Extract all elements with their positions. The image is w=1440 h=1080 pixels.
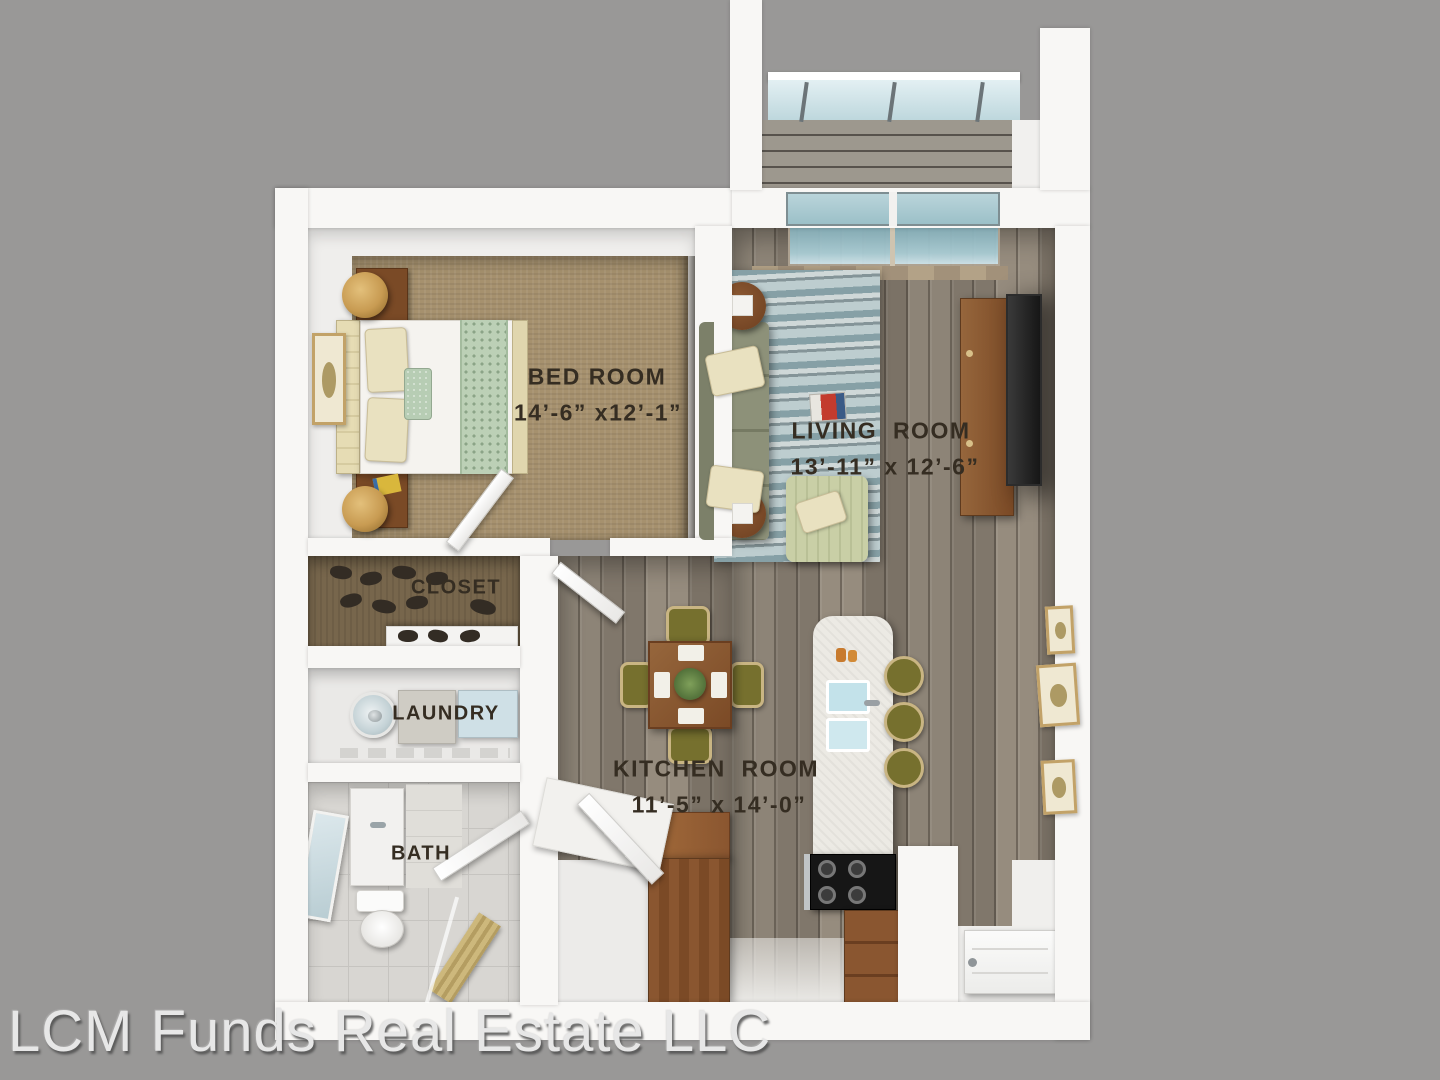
laundry-label: LAUNDRY: [392, 703, 500, 726]
toilet-tank: [356, 890, 404, 912]
kitchen-white-wall-column: [898, 846, 958, 1005]
tv-screen: [1006, 294, 1042, 486]
bar-stool-3: [884, 748, 924, 788]
tv-console-knob-1: [966, 350, 973, 357]
wall-bedroom-bottom-left: [308, 538, 550, 556]
wall-balcony-right: [1040, 28, 1090, 190]
closet-label: CLOSET: [411, 577, 501, 600]
stove-handle: [804, 854, 810, 910]
stove-burner-1: [818, 860, 836, 878]
island-spice-jar-2: [848, 650, 857, 662]
island-faucet: [864, 700, 880, 706]
hallway-wall-art-3: [1041, 759, 1078, 815]
wall-left-outer: [275, 188, 308, 1040]
bed-accent-pillow: [404, 368, 432, 420]
hallway-wall-art-2: [1036, 663, 1080, 728]
kitchen-label: KITCHEN ROOM: [613, 756, 819, 783]
bed-pillow-1: [364, 327, 409, 393]
kitchen-dimensions: 11’-5” x 14’-0”: [632, 792, 807, 819]
balcony-deck-side-strip: [1012, 120, 1040, 190]
island-sink-lower: [826, 718, 870, 752]
dining-chair-top: [666, 606, 710, 646]
table-lamp-top: [342, 272, 388, 318]
bed-runner-blanket: [460, 320, 508, 474]
table-lamp-bottom: [342, 486, 388, 532]
laundry-drain-grate: [340, 748, 510, 758]
closet-shelf-shoe-1: [398, 630, 418, 642]
placemat-left: [654, 672, 670, 698]
wall-laundry-bath-divider: [308, 763, 520, 782]
front-entry-door-panel-line-2: [972, 972, 1048, 974]
bath-label: BATH: [391, 843, 451, 866]
bed-pillow-2: [364, 397, 409, 463]
living-room-dimensions: 13’-11” x 12’-6”: [791, 454, 980, 481]
bar-stool-2: [884, 702, 924, 742]
candle-bottom: [732, 503, 753, 524]
watermark-text: LCM Funds Real Estate LLC: [8, 998, 771, 1065]
bedroom-dimensions: 14’-6” x12’-1”: [514, 400, 682, 427]
placemat-top: [678, 645, 704, 661]
kitchen-counter-left: [648, 858, 730, 1005]
dining-centerpiece-plant: [674, 668, 706, 700]
front-entry-door-handle: [968, 958, 977, 967]
island-sink-upper: [826, 680, 870, 714]
toilet-bowl: [360, 910, 404, 948]
balcony-deck: [752, 120, 1012, 190]
living-room-label: LIVING ROOM: [792, 418, 971, 445]
bedroom-label: BED ROOM: [528, 364, 667, 391]
dining-chair-right: [730, 662, 764, 708]
placemat-right: [711, 672, 727, 698]
wall-closet-bottom: [308, 646, 520, 668]
stove-burner-2: [848, 860, 866, 878]
bed-footboard: [512, 320, 528, 474]
island-spice-jar-1: [836, 648, 846, 662]
washer-knob: [368, 710, 382, 722]
living-room-window-mullion: [889, 192, 897, 226]
window-glass-reflection-divider: [890, 226, 895, 266]
bath-vanity: [350, 788, 404, 886]
bedroom-wall-art: [312, 333, 346, 425]
bath-faucet: [370, 822, 386, 828]
floorplan-rendering: BED ROOM 14’-6” x12’-1” LIVING ROOM 13’-…: [0, 0, 1440, 1080]
bar-stool-1: [884, 656, 924, 696]
placemat-bottom: [678, 708, 704, 724]
bedroom-carpet-edge-shadow: [682, 256, 695, 540]
wall-balcony-left: [730, 0, 762, 190]
candle-top: [732, 295, 753, 316]
front-entry-door-panel-line-1: [972, 948, 1048, 950]
stove-burner-3: [818, 886, 836, 904]
stove-burner-4: [848, 886, 866, 904]
wall-top-bedroom: [275, 188, 732, 228]
hallway-wall-art-1: [1045, 605, 1075, 654]
wall-bedroom-bottom-right: [610, 538, 732, 556]
front-entry-door: [964, 930, 1056, 994]
